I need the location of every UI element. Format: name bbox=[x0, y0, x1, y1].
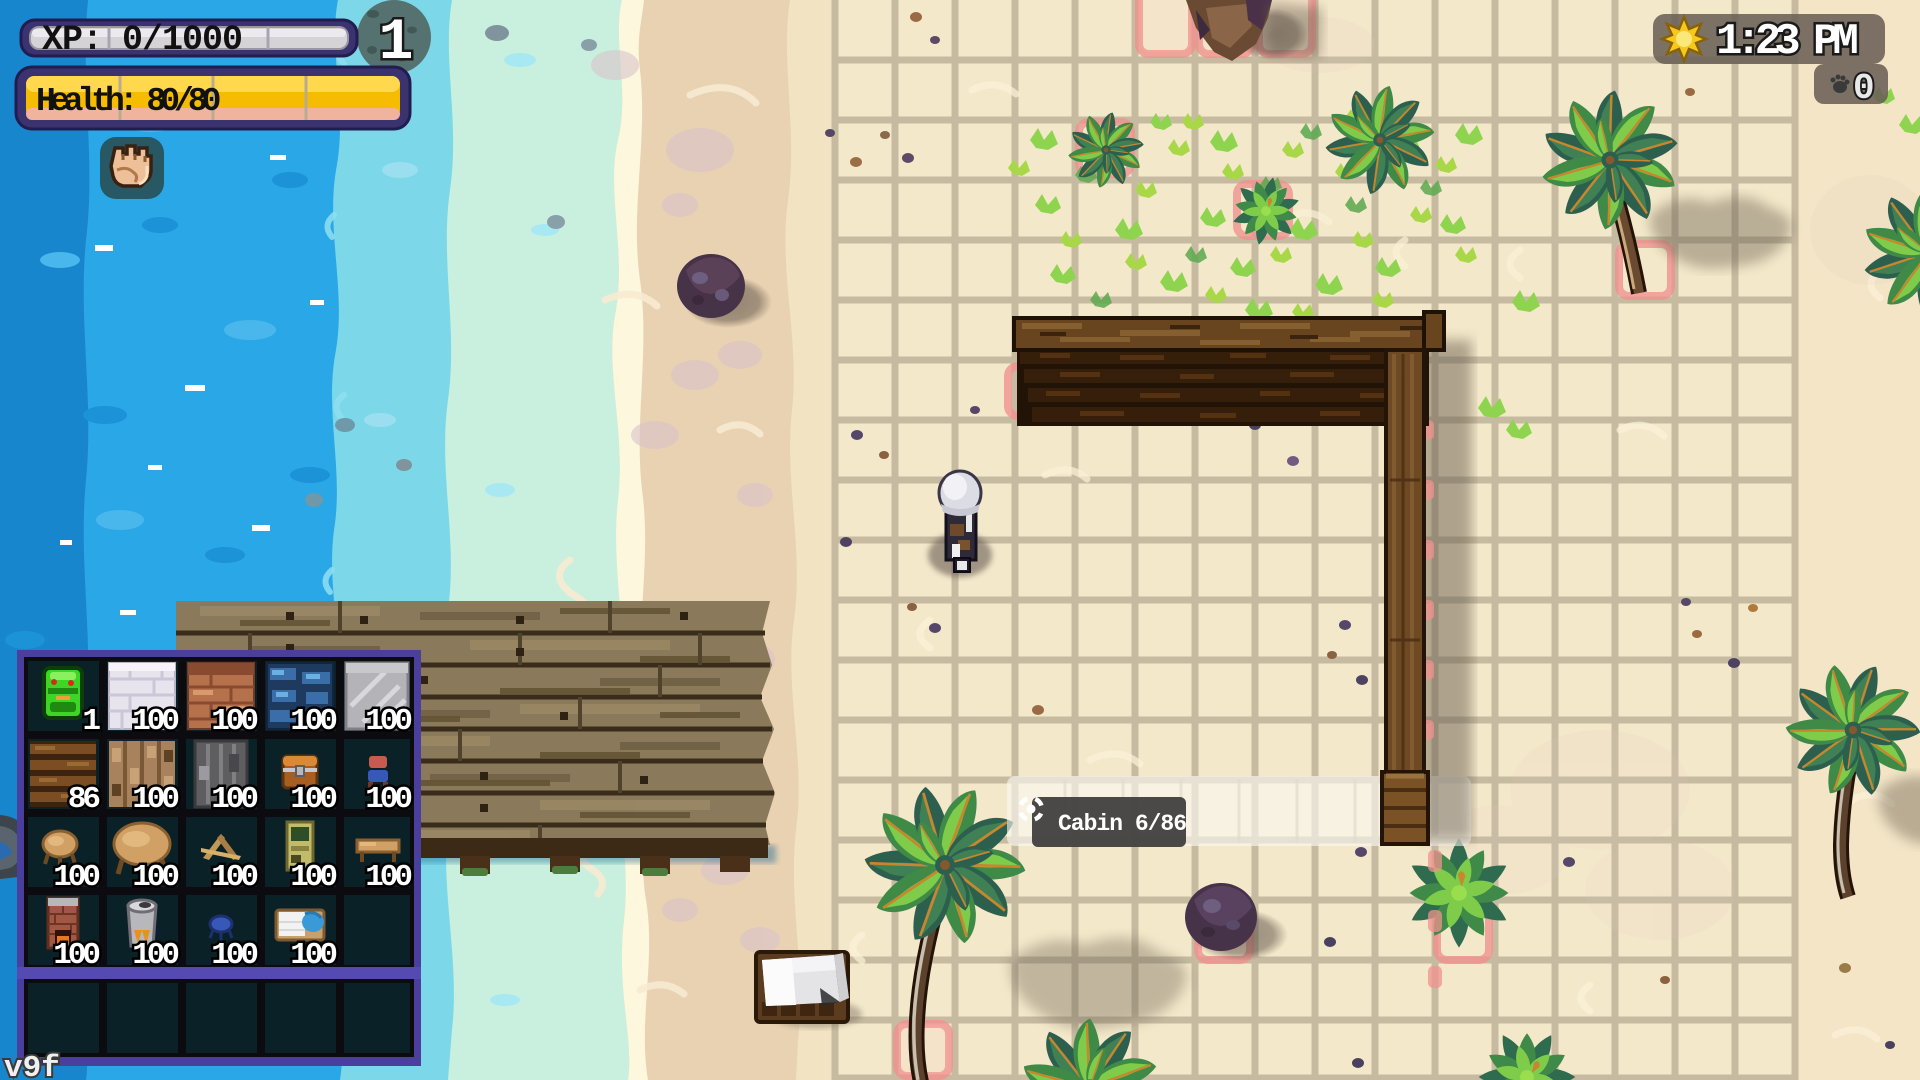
svg-text:100: 100 bbox=[365, 782, 411, 817]
svg-text:100: 100 bbox=[365, 704, 411, 739]
svg-text:100: 100 bbox=[211, 860, 257, 895]
svg-text:100: 100 bbox=[132, 938, 178, 973]
svg-text:0: 0 bbox=[1853, 68, 1875, 109]
svg-text:100: 100 bbox=[365, 860, 411, 895]
svg-text:100: 100 bbox=[132, 704, 178, 739]
svg-text:100: 100 bbox=[290, 704, 336, 739]
svg-text:100: 100 bbox=[53, 938, 99, 973]
svg-text:100: 100 bbox=[211, 938, 257, 973]
svg-text:100: 100 bbox=[211, 704, 257, 739]
svg-text:1:23 PM: 1:23 PM bbox=[1716, 17, 1857, 67]
svg-text:100: 100 bbox=[290, 938, 336, 973]
svg-text:100: 100 bbox=[53, 860, 99, 895]
svg-text:v9f: v9f bbox=[4, 1051, 60, 1080]
svg-text:Cabin 6/86: Cabin 6/86 bbox=[1058, 811, 1186, 837]
svg-text:100: 100 bbox=[290, 860, 336, 895]
svg-text:Health: 80/80: Health: 80/80 bbox=[36, 83, 220, 120]
svg-text:100: 100 bbox=[211, 782, 257, 817]
svg-text:86: 86 bbox=[68, 782, 100, 817]
svg-text:100: 100 bbox=[290, 782, 336, 817]
svg-text:100: 100 bbox=[132, 782, 178, 817]
svg-text:XP: 0/1000: XP: 0/1000 bbox=[42, 20, 242, 60]
svg-text:100: 100 bbox=[132, 860, 178, 895]
